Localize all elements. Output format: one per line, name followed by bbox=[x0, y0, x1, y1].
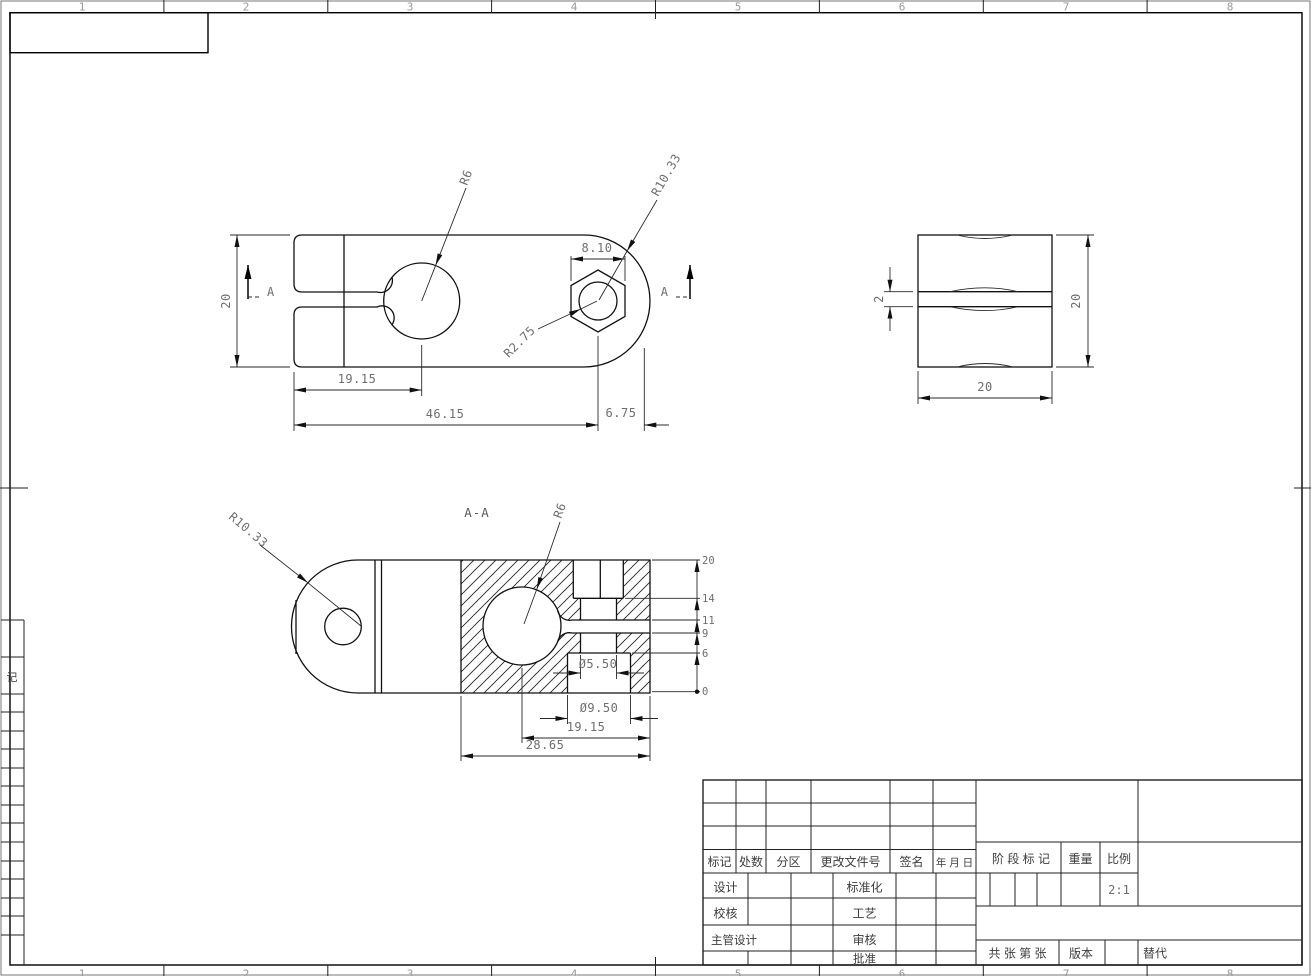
side-view: 2 20 20 bbox=[872, 235, 1094, 404]
centering-marks bbox=[0, 0, 1311, 976]
tb-scale-value: 2:1 bbox=[1108, 883, 1130, 897]
tb-label-mark: 标记 bbox=[707, 855, 731, 869]
dim-hex-flats: 8.10 bbox=[571, 241, 625, 281]
side-view-outline bbox=[918, 235, 1052, 367]
dim-hex-flats-label: 8.10 bbox=[582, 241, 613, 255]
zone-label-bottom-3: 3 bbox=[407, 968, 414, 976]
ordinate-origin-dot bbox=[695, 690, 699, 694]
zone-label-bottom-5: 5 bbox=[735, 968, 742, 976]
section-marker-right-label: A bbox=[661, 285, 669, 299]
dim-side-height-label: 20 bbox=[1069, 293, 1083, 308]
leader-r1033-top-label: R10.33 bbox=[648, 151, 683, 198]
cad-drawing-sheet: 1 2 3 4 5 6 7 8 1 2 3 4 5 6 7 8 记 bbox=[0, 0, 1311, 976]
tb-label-review: 审核 bbox=[852, 932, 876, 947]
top-left-block bbox=[10, 13, 208, 53]
tb-label-chief-design: 主管设计 bbox=[711, 933, 757, 947]
section-small-hole bbox=[581, 598, 617, 653]
dim-side-width-label: 20 bbox=[977, 380, 992, 394]
zone-label-bottom-6: 6 bbox=[899, 968, 906, 976]
dim-top-hole-offset: 19.15 bbox=[294, 345, 422, 431]
tb-label-standardization: 标准化 bbox=[846, 881, 882, 895]
leader-r1033-top: R10.33 bbox=[599, 151, 684, 300]
title-block-labels: 标记 处数 分区 更改文件号 签名 年 月 日 设计 标准化 校核 工艺 主管设… bbox=[707, 851, 1167, 966]
zone-ticks bbox=[164, 0, 1147, 976]
tb-label-change-doc: 更改文件号 bbox=[820, 854, 880, 869]
ordinate-0: 0 bbox=[702, 686, 708, 698]
dim-top-height: 20 bbox=[219, 235, 290, 367]
dim-dia-counterbore-label: Ø9.50 bbox=[580, 701, 619, 715]
leader-r1033-section-label: R10.33 bbox=[226, 510, 271, 551]
ordinate-14: 14 bbox=[702, 593, 715, 605]
tb-label-design: 设计 bbox=[713, 881, 737, 895]
sheet-outer-border bbox=[1, 1, 1310, 975]
leader-r275-label: R2.75 bbox=[501, 323, 538, 360]
ordinate-9: 9 bbox=[702, 628, 708, 640]
zone-label-top-8: 8 bbox=[1227, 1, 1234, 14]
zone-label-bottom-4: 4 bbox=[571, 968, 578, 976]
zone-label-bottom-1: 1 bbox=[79, 968, 86, 976]
section-title: A-A bbox=[464, 505, 490, 520]
left-border-strip: 记 bbox=[1, 620, 24, 965]
dim-top-height-label: 20 bbox=[219, 293, 233, 308]
dim-section-block: 28.65 bbox=[461, 696, 650, 761]
dim-side-width: 20 bbox=[918, 371, 1052, 404]
tb-label-zone: 分区 bbox=[776, 855, 800, 869]
zone-label-top-6: 6 bbox=[899, 1, 906, 14]
zone-label-top-2: 2 bbox=[243, 1, 250, 14]
zone-label-bottom-2: 2 bbox=[243, 968, 250, 976]
ordinate-11: 11 bbox=[702, 615, 715, 627]
dim-side-slot-label: 2 bbox=[872, 295, 886, 303]
side-view-tangent-arcs bbox=[950, 235, 1018, 367]
zone-label-top-7: 7 bbox=[1063, 1, 1070, 14]
leader-r275: R2.75 bbox=[501, 301, 597, 360]
dim-side-slot: 2 bbox=[872, 267, 913, 331]
dim-top-hole-offset-label: 19.15 bbox=[338, 372, 377, 386]
section-marker-left-label: A bbox=[267, 285, 275, 299]
tb-label-stage-mark: 阶 段 标 记 bbox=[992, 851, 1050, 866]
left-strip-label: 记 bbox=[7, 671, 18, 684]
side-view-slot-edges bbox=[918, 292, 1052, 307]
section-marker-right: A bbox=[661, 265, 690, 299]
dim-section-block-label: 28.65 bbox=[526, 738, 565, 752]
leader-r6-top-label: R6 bbox=[457, 168, 476, 187]
tb-label-sheets: 共 张 第 张 bbox=[988, 947, 1046, 961]
zone-label-top-1: 1 bbox=[79, 1, 86, 14]
title-block-grid bbox=[703, 780, 1302, 965]
tb-label-date: 年 月 日 bbox=[936, 856, 973, 869]
zone-label-top-3: 3 bbox=[407, 1, 414, 14]
section-slot-edge-lines bbox=[375, 560, 382, 693]
top-view-upper-jaw bbox=[294, 235, 392, 293]
dim-section-hole-offset-label: 19.15 bbox=[567, 720, 606, 734]
section-view: A-A 20 14 11 9 6 bbox=[226, 501, 715, 761]
dim-top-end-offset: 6.75 bbox=[573, 348, 669, 431]
tb-label-count: 处数 bbox=[739, 854, 763, 869]
leader-r6-section-label: R6 bbox=[551, 501, 569, 520]
dim-top-total-label: 46.15 bbox=[426, 407, 465, 421]
top-view: 20 19.15 46.15 6.75 8.10 bbox=[219, 151, 690, 431]
zone-label-bottom-8: 8 bbox=[1227, 968, 1234, 976]
zone-label-top-5: 5 bbox=[735, 1, 742, 14]
ordinate-6: 6 bbox=[702, 648, 708, 660]
tb-label-process: 工艺 bbox=[852, 907, 876, 921]
title-block: 标记 处数 分区 更改文件号 签名 年 月 日 设计 标准化 校核 工艺 主管设… bbox=[703, 780, 1302, 966]
tb-label-check: 校核 bbox=[713, 906, 737, 921]
dim-side-height: 20 bbox=[1056, 235, 1094, 367]
section-end-hole bbox=[325, 608, 362, 645]
tb-label-version: 版本 bbox=[1069, 947, 1093, 961]
tb-label-weight: 重量 bbox=[1068, 852, 1092, 866]
tb-label-replace: 替代 bbox=[1143, 947, 1167, 961]
section-hex-recess bbox=[573, 560, 623, 598]
sheet-frame: 1 2 3 4 5 6 7 8 1 2 3 4 5 6 7 8 记 bbox=[0, 0, 1311, 976]
tb-label-approve: 批准 bbox=[853, 952, 876, 966]
dim-top-end-offset-label: 6.75 bbox=[606, 406, 637, 420]
leader-r6-top: R6 bbox=[422, 168, 476, 301]
dim-dia-small-label: Ø5.50 bbox=[579, 657, 618, 671]
tb-label-scale: 比例 bbox=[1107, 852, 1131, 866]
top-view-hex-hole bbox=[579, 282, 617, 320]
section-clamp-hole bbox=[483, 587, 561, 665]
ordinate-20: 20 bbox=[702, 555, 715, 567]
zone-label-bottom-7: 7 bbox=[1063, 968, 1070, 976]
zone-label-top-4: 4 bbox=[571, 1, 578, 14]
section-marker-left: A bbox=[248, 265, 275, 299]
drawing-frame bbox=[10, 13, 1302, 965]
tb-label-signature: 签名 bbox=[899, 854, 923, 869]
